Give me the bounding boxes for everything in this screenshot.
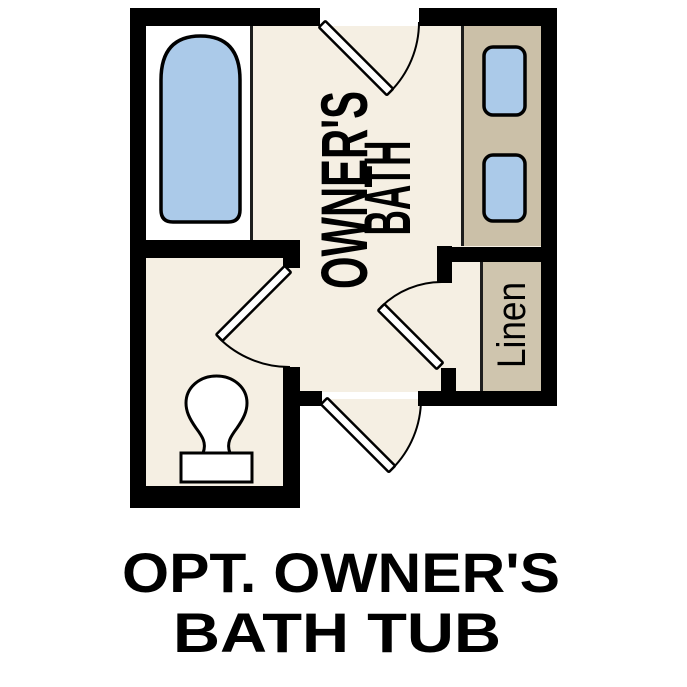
toilet-tank [181, 453, 252, 482]
wall-top-right [419, 8, 557, 26]
bathtub [161, 36, 240, 222]
wall-bottom-left [130, 486, 300, 508]
linen-shelf-edge-line [480, 262, 483, 392]
wall-toilet-right-lower [283, 367, 300, 508]
wall-bottom-right [418, 391, 557, 406]
sink-bottom [484, 155, 525, 221]
wall-vanity-bottom [451, 247, 541, 262]
vanity-counter-edge-line [461, 26, 464, 246]
wall-linen-jamb-lower [441, 368, 456, 392]
caption-line2: BATH TUB [173, 601, 501, 664]
linen-label: Linen [490, 282, 534, 368]
wall-top-left [130, 8, 320, 26]
wall-toilet-divider [130, 240, 300, 258]
wall-toilet-jamb-upper [283, 240, 300, 268]
sink-top [484, 47, 525, 115]
floor-plan: OWNER'S BATH Linen OPT. OWNER'S BATH TUB [0, 0, 687, 687]
room-label-line2: BATH [350, 141, 424, 236]
caption-line1: OPT. OWNER'S [122, 541, 560, 604]
floor-plan-page: OWNER'S BATH Linen OPT. OWNER'S BATH TUB [0, 0, 687, 687]
wall-linen-jamb-upper [437, 246, 452, 283]
wall-right [541, 8, 557, 406]
wall-entry-jamb [298, 391, 322, 406]
tub-alcove-edge-line [250, 26, 253, 240]
